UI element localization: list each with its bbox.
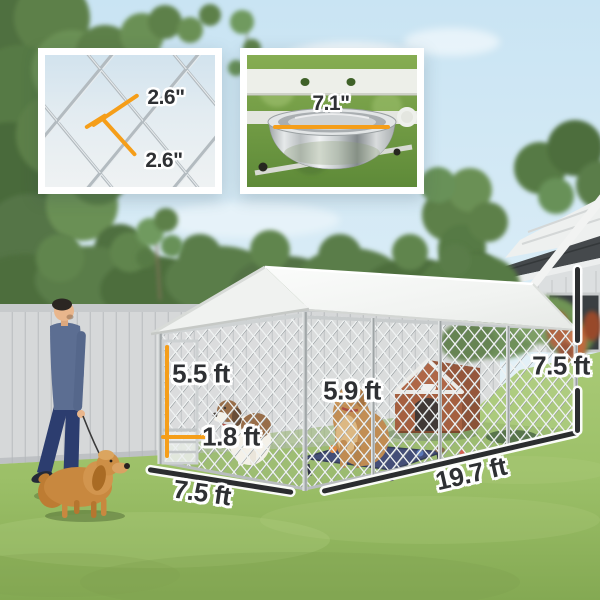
bowl-diameter-label: 7.1" (312, 92, 349, 116)
dimension-label-overall-height: 7.5 ft (532, 351, 590, 382)
door-width-line (161, 435, 207, 439)
overall-height-line-bottom (575, 388, 580, 433)
dimension-label-door-height: 5.5 ft (172, 359, 230, 390)
bowl-detail-inset: 7.1" (240, 48, 424, 194)
mesh-size-label-a: 2.6" (147, 86, 184, 110)
mesh-size-label-b: 2.6" (145, 149, 182, 173)
dimension-label-interior-height: 5.9 ft (323, 376, 381, 407)
dimension-label-door-width: 1.8 ft (202, 422, 260, 453)
mesh-detail-inset: 2.6" 2.6" (38, 48, 222, 194)
product-image: 5.5 ft 1.8 ft 5.9 ft 7.5 ft 19.7 ft 7.5 … (0, 0, 600, 600)
dog-bowl-closeup (247, 55, 417, 187)
door-height-line (165, 345, 169, 458)
bowl-diameter-line (273, 125, 390, 129)
chain-link-closeup (45, 55, 215, 187)
overall-height-line-top (575, 267, 580, 343)
